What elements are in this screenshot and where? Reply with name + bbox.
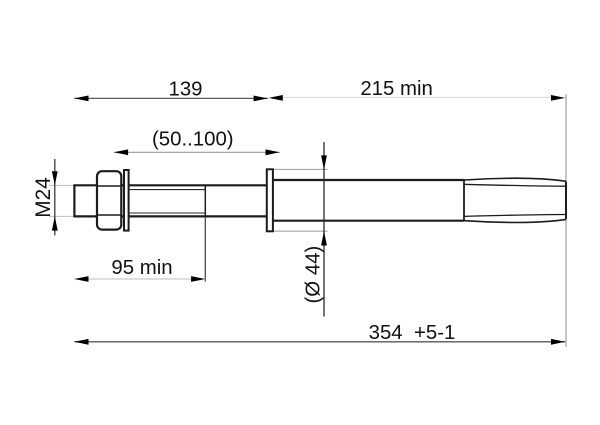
svg-text:139: 139	[168, 79, 202, 101]
svg-text:M24: M24	[32, 177, 55, 217]
svg-text:(50..100): (50..100)	[152, 129, 234, 151]
svg-text:(Ø 44): (Ø 44)	[303, 246, 325, 304]
svg-text:215 min: 215 min	[360, 78, 433, 100]
svg-text:95 min: 95 min	[111, 257, 172, 279]
svg-text:354 +5-1: 354 +5-1	[369, 322, 456, 344]
